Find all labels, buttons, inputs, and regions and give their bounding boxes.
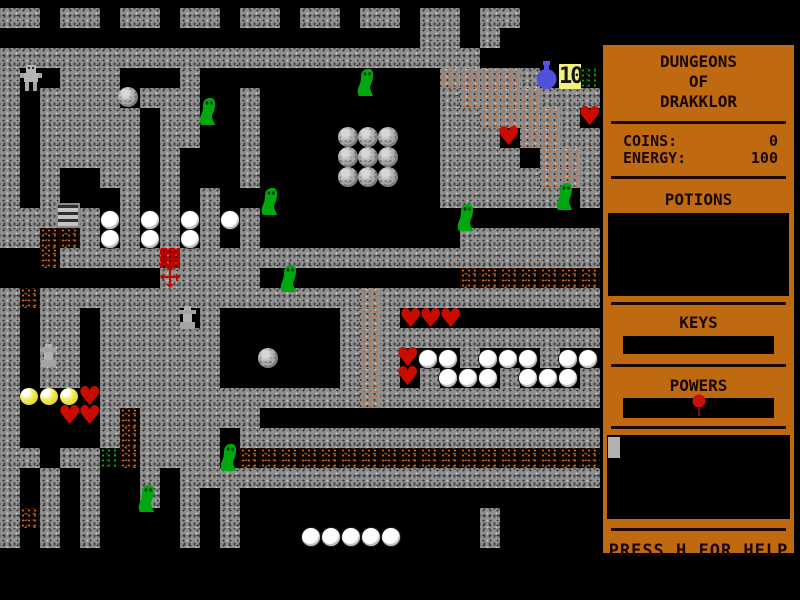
wall-tile	[180, 528, 200, 548]
wall-tile	[60, 248, 80, 268]
dirt-wall-tile	[480, 68, 500, 88]
egg-sprite	[559, 350, 577, 368]
wall-tile	[240, 168, 260, 188]
wall-tile	[200, 308, 220, 328]
wall-tile	[200, 208, 220, 228]
wall-tile	[520, 288, 540, 308]
wall-tile	[80, 448, 100, 468]
wall-tile	[560, 88, 580, 108]
wall-tile	[100, 328, 120, 348]
dirt-wall-tile	[360, 348, 380, 368]
wall-tile	[580, 248, 600, 268]
wall-tile	[440, 28, 460, 48]
wall-tile	[240, 148, 260, 168]
dirt-wall-tile	[460, 68, 480, 88]
dirt-wall-tile	[480, 88, 500, 108]
wall-tile	[100, 128, 120, 148]
wall-tile	[560, 248, 580, 268]
wall-tile	[240, 408, 260, 428]
wall-tile	[80, 68, 100, 88]
wall-tile	[340, 368, 360, 388]
wall-tile	[160, 48, 180, 68]
wall-tile	[180, 388, 200, 408]
wall-tile	[320, 248, 340, 268]
wall-tile	[180, 488, 200, 508]
wall-tile	[480, 328, 500, 348]
wall-tile	[200, 388, 220, 408]
wall-tile	[0, 8, 20, 28]
wall-tile	[460, 388, 480, 408]
dirt-wall-tile	[460, 88, 480, 108]
wall-tile	[460, 148, 480, 168]
wall-tile	[200, 48, 220, 68]
slime-sprite	[261, 186, 282, 219]
wall-tile	[460, 48, 480, 68]
wall-tile	[580, 388, 600, 408]
boulder-sprite	[338, 167, 358, 187]
wall-tile	[460, 348, 480, 368]
wall-tile	[300, 248, 320, 268]
wall-tile	[420, 8, 440, 28]
wall-tile	[60, 88, 80, 108]
dirt-wall-tile	[440, 68, 460, 88]
egg-sprite	[499, 350, 517, 368]
heart-sprite: ♥	[578, 108, 598, 128]
wall-tile	[0, 168, 20, 188]
wall-tile	[580, 328, 600, 348]
wall-tile	[0, 108, 20, 128]
wall-tile	[160, 188, 180, 208]
energy-stat: ENERGY: 100	[623, 150, 778, 167]
wall-tile	[40, 368, 60, 388]
help-text: PRESS H FOR HELP	[603, 541, 794, 561]
divider	[611, 426, 786, 429]
wall-tile	[120, 368, 140, 388]
wall-tile	[420, 428, 440, 448]
dirt-floor-tile	[480, 448, 500, 468]
power-pin-icon	[691, 394, 707, 418]
dirt-wall-tile	[500, 88, 520, 108]
wall-tile	[240, 468, 260, 488]
wall-tile	[0, 88, 20, 108]
wall-tile	[460, 248, 480, 268]
wall-tile	[580, 368, 600, 388]
wall-tile	[460, 468, 480, 488]
wall-tile	[540, 348, 560, 368]
wall-tile	[100, 388, 120, 408]
coin-sprite	[20, 388, 38, 405]
dirt-floor-tile	[20, 508, 40, 528]
wall-tile	[540, 428, 560, 448]
wall-tile	[60, 328, 80, 348]
player-sprite	[19, 64, 43, 96]
wall-tile	[40, 468, 60, 488]
wall-tile	[140, 308, 160, 328]
wall-tile	[320, 428, 340, 448]
wall-tile	[440, 88, 460, 108]
egg-sprite	[362, 528, 380, 546]
wall-tile	[100, 48, 120, 68]
wall-tile	[500, 248, 520, 268]
wall-tile	[500, 388, 520, 408]
wall-tile	[160, 428, 180, 448]
wall-tile	[40, 48, 60, 68]
wall-tile	[540, 248, 560, 268]
wall-tile	[80, 88, 100, 108]
wall-tile	[240, 208, 260, 228]
wall-tile	[80, 468, 100, 488]
wall-tile	[140, 288, 160, 308]
wall-tile	[220, 268, 240, 288]
wall-tile	[480, 28, 500, 48]
dirt-floor-tile	[340, 448, 360, 468]
wall-tile	[140, 248, 160, 268]
wall-tile	[120, 348, 140, 368]
wall-tile	[40, 528, 60, 548]
wall-tile	[0, 208, 20, 228]
wall-tile	[140, 328, 160, 348]
wall-tile	[500, 328, 520, 348]
wall-tile	[60, 108, 80, 128]
dirt-floor-tile	[440, 448, 460, 468]
title-line: DUNGEONS	[603, 52, 794, 72]
wall-tile	[340, 248, 360, 268]
powers-inventory	[623, 398, 774, 418]
wall-tile	[20, 228, 40, 248]
dungeon-map[interactable]: 10♥♥♥♥♥♥♥♥♥♥	[0, 0, 600, 600]
dirt-floor-tile	[560, 448, 580, 468]
moss-floor-tile	[580, 68, 600, 88]
wall-tile	[220, 488, 240, 508]
boulder-sprite	[358, 127, 378, 147]
wall-tile	[180, 68, 200, 88]
boulder-sprite	[258, 348, 278, 368]
coins-stat: COINS: 0	[623, 133, 778, 150]
wall-tile	[340, 48, 360, 68]
slime-sprite	[138, 483, 159, 516]
wall-tile	[400, 48, 420, 68]
wall-tile	[100, 408, 120, 428]
egg-sprite	[419, 350, 437, 368]
wall-tile	[580, 228, 600, 248]
wall-tile	[120, 48, 140, 68]
wall-tile	[100, 348, 120, 368]
egg-sprite	[221, 211, 239, 229]
wall-tile	[40, 148, 60, 168]
wall-tile	[80, 288, 100, 308]
heart-sprite: ♥	[419, 310, 439, 330]
wall-tile	[120, 328, 140, 348]
wall-tile	[220, 508, 240, 528]
wall-tile	[300, 48, 320, 68]
wall-tile	[440, 128, 460, 148]
wall-tile	[120, 248, 140, 268]
wall-tile	[380, 248, 400, 268]
wall-tile	[160, 208, 180, 228]
wall-tile	[100, 248, 120, 268]
wall-tile	[200, 468, 220, 488]
slime-sprite	[220, 442, 241, 475]
wall-tile	[560, 108, 580, 128]
wall-tile	[420, 388, 440, 408]
wall-tile	[300, 288, 320, 308]
wall-tile	[200, 188, 220, 208]
powers-header: POWERS	[603, 376, 794, 395]
wall-tile	[480, 228, 500, 248]
wall-tile	[420, 468, 440, 488]
dirt-wall-tile	[360, 388, 380, 408]
divider	[611, 176, 786, 179]
status-sidebar: DUNGEONS OF DRAKKLOR COINS: 0 ENERGY: 10…	[600, 0, 800, 600]
wall-tile	[200, 328, 220, 348]
wall-tile	[120, 288, 140, 308]
wall-tile	[120, 128, 140, 148]
egg-sprite	[141, 211, 159, 229]
egg-sprite	[439, 369, 457, 387]
wall-tile	[40, 128, 60, 148]
wall-tile	[380, 48, 400, 68]
keys-inventory	[623, 336, 774, 354]
wall-tile	[200, 368, 220, 388]
message-box	[607, 435, 790, 519]
wall-tile	[40, 168, 60, 188]
wall-tile	[480, 248, 500, 268]
wall-tile	[320, 8, 340, 28]
wall-tile	[480, 528, 500, 548]
wall-tile	[0, 528, 20, 548]
wall-tile	[540, 468, 560, 488]
wall-tile	[120, 168, 140, 188]
wall-tile	[180, 108, 200, 128]
wall-tile	[40, 488, 60, 508]
wall-tile	[240, 428, 260, 448]
dirt-wall-tile	[360, 308, 380, 328]
wall-tile	[340, 428, 360, 448]
heart-sprite: ♥	[78, 407, 98, 427]
wall-tile	[520, 248, 540, 268]
dirt-floor-tile	[120, 448, 140, 468]
wall-tile	[100, 308, 120, 328]
dirt-floor-tile	[260, 448, 280, 468]
wall-tile	[100, 368, 120, 388]
wall-tile	[440, 48, 460, 68]
wall-tile	[480, 288, 500, 308]
wall-tile	[80, 128, 100, 148]
wall-tile	[140, 428, 160, 448]
dirt-floor-tile	[120, 428, 140, 448]
boulder-sprite	[378, 147, 398, 167]
dirt-wall-tile	[560, 148, 580, 168]
wall-tile	[580, 168, 600, 188]
dirt-wall-tile	[520, 108, 540, 128]
wall-tile	[180, 248, 200, 268]
dirt-floor-tile	[580, 268, 600, 288]
wall-tile	[380, 288, 400, 308]
wall-tile	[200, 248, 220, 268]
wall-tile	[220, 248, 240, 268]
wall-tile	[420, 368, 440, 388]
wall-tile	[200, 8, 220, 28]
wall-tile	[80, 8, 100, 28]
wall-tile	[60, 128, 80, 148]
wall-tile	[0, 148, 20, 168]
keys-header: KEYS	[603, 313, 794, 332]
wall-tile	[0, 488, 20, 508]
wall-tile	[180, 88, 200, 108]
energy-value: 100	[751, 150, 778, 167]
dirt-wall-tile	[360, 368, 380, 388]
coins-label: COINS:	[623, 133, 677, 150]
wall-tile	[120, 388, 140, 408]
boulder-sprite	[338, 147, 358, 167]
dirt-floor-tile	[380, 448, 400, 468]
wall-tile	[500, 428, 520, 448]
wall-tile	[520, 468, 540, 488]
wall-tile	[180, 128, 200, 148]
dirt-floor-tile	[40, 248, 60, 268]
wall-tile	[80, 508, 100, 528]
wall-tile	[0, 468, 20, 488]
wall-tile	[260, 428, 280, 448]
wall-tile	[200, 448, 220, 468]
wall-tile	[100, 68, 120, 88]
wall-tile	[400, 248, 420, 268]
wall-tile	[360, 8, 380, 28]
wall-tile	[0, 408, 20, 428]
wall-tile	[300, 468, 320, 488]
wall-tile	[460, 108, 480, 128]
wall-tile	[100, 168, 120, 188]
coin-sprite	[40, 388, 58, 405]
heart-sprite: ♥	[396, 368, 416, 388]
wall-tile	[180, 288, 200, 308]
wall-tile	[440, 468, 460, 488]
wall-tile	[60, 308, 80, 328]
wall-tile	[140, 368, 160, 388]
dirt-floor-tile	[300, 448, 320, 468]
wall-tile	[160, 88, 180, 108]
boulder-sprite	[118, 87, 138, 107]
wall-tile	[260, 48, 280, 68]
dirt-floor-tile	[40, 228, 60, 248]
wall-tile	[580, 428, 600, 448]
wall-tile	[120, 108, 140, 128]
slime-sprite	[457, 202, 478, 235]
dirt-floor-tile	[400, 448, 420, 468]
wall-tile	[380, 428, 400, 448]
wall-tile	[0, 288, 20, 308]
title-line: DRAKKLOR	[603, 92, 794, 112]
wall-tile	[540, 228, 560, 248]
wall-tile	[560, 288, 580, 308]
wall-tile	[340, 388, 360, 408]
egg-sprite	[322, 528, 340, 546]
wall-tile	[360, 468, 380, 488]
dirt-floor-tile	[480, 268, 500, 288]
wall-tile	[300, 428, 320, 448]
wall-tile	[220, 528, 240, 548]
wall-tile	[240, 248, 260, 268]
boulder-sprite	[338, 127, 358, 147]
wall-tile	[320, 288, 340, 308]
dirt-floor-tile	[120, 408, 140, 428]
wall-tile	[520, 328, 540, 348]
wall-tile	[240, 108, 260, 128]
wall-tile	[180, 468, 200, 488]
wall-tile	[480, 168, 500, 188]
dirt-floor-tile	[60, 228, 80, 248]
heart-sprite: ♥	[58, 407, 78, 427]
dirt-floor-tile	[460, 268, 480, 288]
flask-sprite	[534, 61, 559, 93]
wall-tile	[440, 108, 460, 128]
wall-tile	[200, 288, 220, 308]
dirt-floor-tile	[360, 448, 380, 468]
boulder-sprite	[378, 167, 398, 187]
wall-tile	[500, 288, 520, 308]
wall-tile	[440, 8, 460, 28]
wall-tile	[440, 388, 460, 408]
wall-tile	[480, 468, 500, 488]
wall-tile	[80, 48, 100, 68]
egg-sprite	[181, 211, 199, 229]
dirt-wall-tile	[360, 328, 380, 348]
egg-sprite	[439, 350, 457, 368]
wall-tile	[160, 228, 180, 248]
wall-tile	[460, 168, 480, 188]
wall-tile	[80, 488, 100, 508]
wall-tile	[60, 288, 80, 308]
dirt-floor-tile	[20, 288, 40, 308]
dirt-floor-tile	[540, 448, 560, 468]
wall-tile	[0, 368, 20, 388]
wall-tile	[440, 148, 460, 168]
egg-sprite	[382, 528, 400, 546]
game-title: DUNGEONS OF DRAKKLOR	[603, 45, 794, 112]
wall-tile	[160, 348, 180, 368]
wall-tile	[200, 408, 220, 428]
wall-tile	[500, 368, 520, 388]
red-brick-tile	[160, 248, 180, 268]
wall-tile	[120, 208, 140, 228]
divider	[611, 302, 786, 305]
wall-tile	[120, 8, 140, 28]
wall-tile	[140, 448, 160, 468]
wall-tile	[0, 308, 20, 328]
wall-tile	[0, 448, 20, 468]
cross-sprite	[160, 266, 180, 292]
wall-tile	[40, 508, 60, 528]
wall-tile	[180, 368, 200, 388]
wall-tile	[260, 8, 280, 28]
wall-tile	[20, 448, 40, 468]
wall-tile	[0, 428, 20, 448]
wall-tile	[480, 508, 500, 528]
wall-tile	[440, 248, 460, 268]
wall-tile	[220, 48, 240, 68]
wall-tile	[100, 108, 120, 128]
wall-tile	[500, 188, 520, 208]
wall-tile	[160, 368, 180, 388]
wall-tile	[0, 508, 20, 528]
wall-tile	[0, 328, 20, 348]
wall-tile	[0, 388, 20, 408]
wall-tile	[340, 328, 360, 348]
wall-tile	[80, 228, 100, 248]
wall-tile	[360, 248, 380, 268]
wall-tile	[120, 148, 140, 168]
egg-sprite	[101, 211, 119, 229]
